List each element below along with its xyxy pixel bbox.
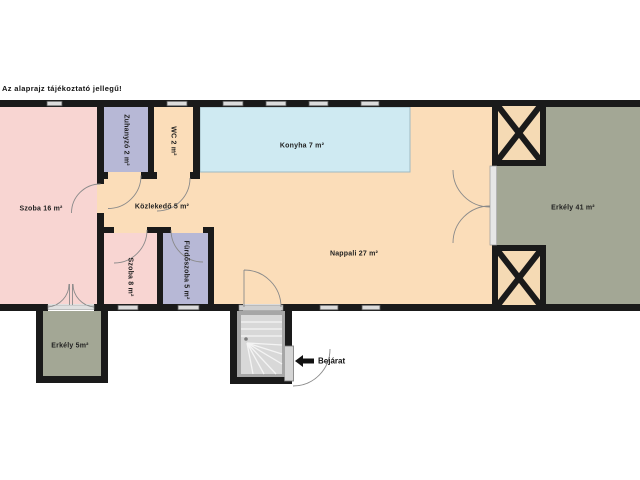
room-label-erkely41: Erkély 41 m²: [551, 205, 595, 212]
wall-under-zuhanyzo-a: [97, 172, 108, 179]
entrance-door-leaf: [285, 346, 294, 381]
wall-over-szoba8-b: [147, 227, 171, 233]
wall-bottom-b: [94, 304, 243, 311]
floor-plan-drawing: [0, 0, 640, 480]
wall-under-zuhanyzo-b: [141, 172, 157, 179]
window-konyha-2: [266, 101, 286, 106]
window-nappali-1: [320, 305, 338, 310]
window-furdoszoba: [178, 305, 199, 310]
wall-stairwell-bottom: [230, 377, 292, 384]
room-label-wc: WC 2 m²: [170, 126, 177, 155]
floor-plan: Az alaprajz tájékoztató jellegű! Szoba 1…: [0, 0, 640, 480]
window-konyha-1: [223, 101, 243, 106]
room-label-nappali: Nappali 27 m²: [330, 251, 378, 258]
window-szoba8: [118, 305, 138, 310]
wall-over-szoba8-a: [97, 227, 114, 233]
konyha-floor: [200, 107, 410, 172]
staircase: [237, 311, 285, 377]
wall-wc-konyha: [193, 107, 200, 172]
wall-under-wc: [190, 172, 200, 179]
window-konyha-4: [361, 101, 379, 106]
x-pillar-top: [492, 100, 546, 166]
room-label-furdoszoba: Fürdőszoba 5 m²: [183, 240, 190, 299]
disclaimer-text: Az alaprajz tájékoztató jellegű!: [2, 84, 122, 93]
window-konyha-3: [309, 101, 328, 106]
entrance-label: Bejárat: [318, 357, 345, 366]
room-label-szoba16: Szoba 16 m²: [19, 206, 62, 213]
window-nappali-2: [362, 305, 380, 310]
wall-szoba16-right-lower: [97, 213, 104, 304]
threshold-erkely41: [490, 166, 497, 245]
wall-szoba8-furdoszoba: [157, 233, 163, 304]
x-pillar-bottom: [492, 245, 546, 311]
wall-erkely5-bottom: [36, 376, 108, 383]
window-wc: [167, 101, 187, 106]
wall-erkely5-right: [101, 304, 108, 383]
room-label-kozlekedo: Közlekedő 5 m²: [135, 204, 189, 211]
wall-stairwell-right-upper: [285, 304, 292, 347]
room-label-konyha: Konyha 7 m²: [280, 143, 324, 150]
wall-furdoszoba-nappali: [208, 233, 214, 304]
door-entrance: [293, 349, 330, 386]
room-label-szoba8: Szoba 8 m²: [127, 258, 134, 297]
entrance-arrow-icon: [295, 355, 314, 367]
wall-stairwell-left: [230, 304, 237, 384]
room-label-erkely5: Erkély 5m²: [51, 343, 88, 350]
threshold-stairwell: [239, 305, 283, 311]
wall-erkely5-left: [36, 304, 43, 383]
stair-newel: [244, 337, 248, 341]
wall-zuhanyzo-wc: [148, 107, 154, 172]
wall-over-furdoszoba: [203, 227, 214, 233]
window-szoba16: [47, 101, 62, 106]
room-label-zuhanyzo: Zuhanyzó 2 m²: [123, 114, 130, 166]
